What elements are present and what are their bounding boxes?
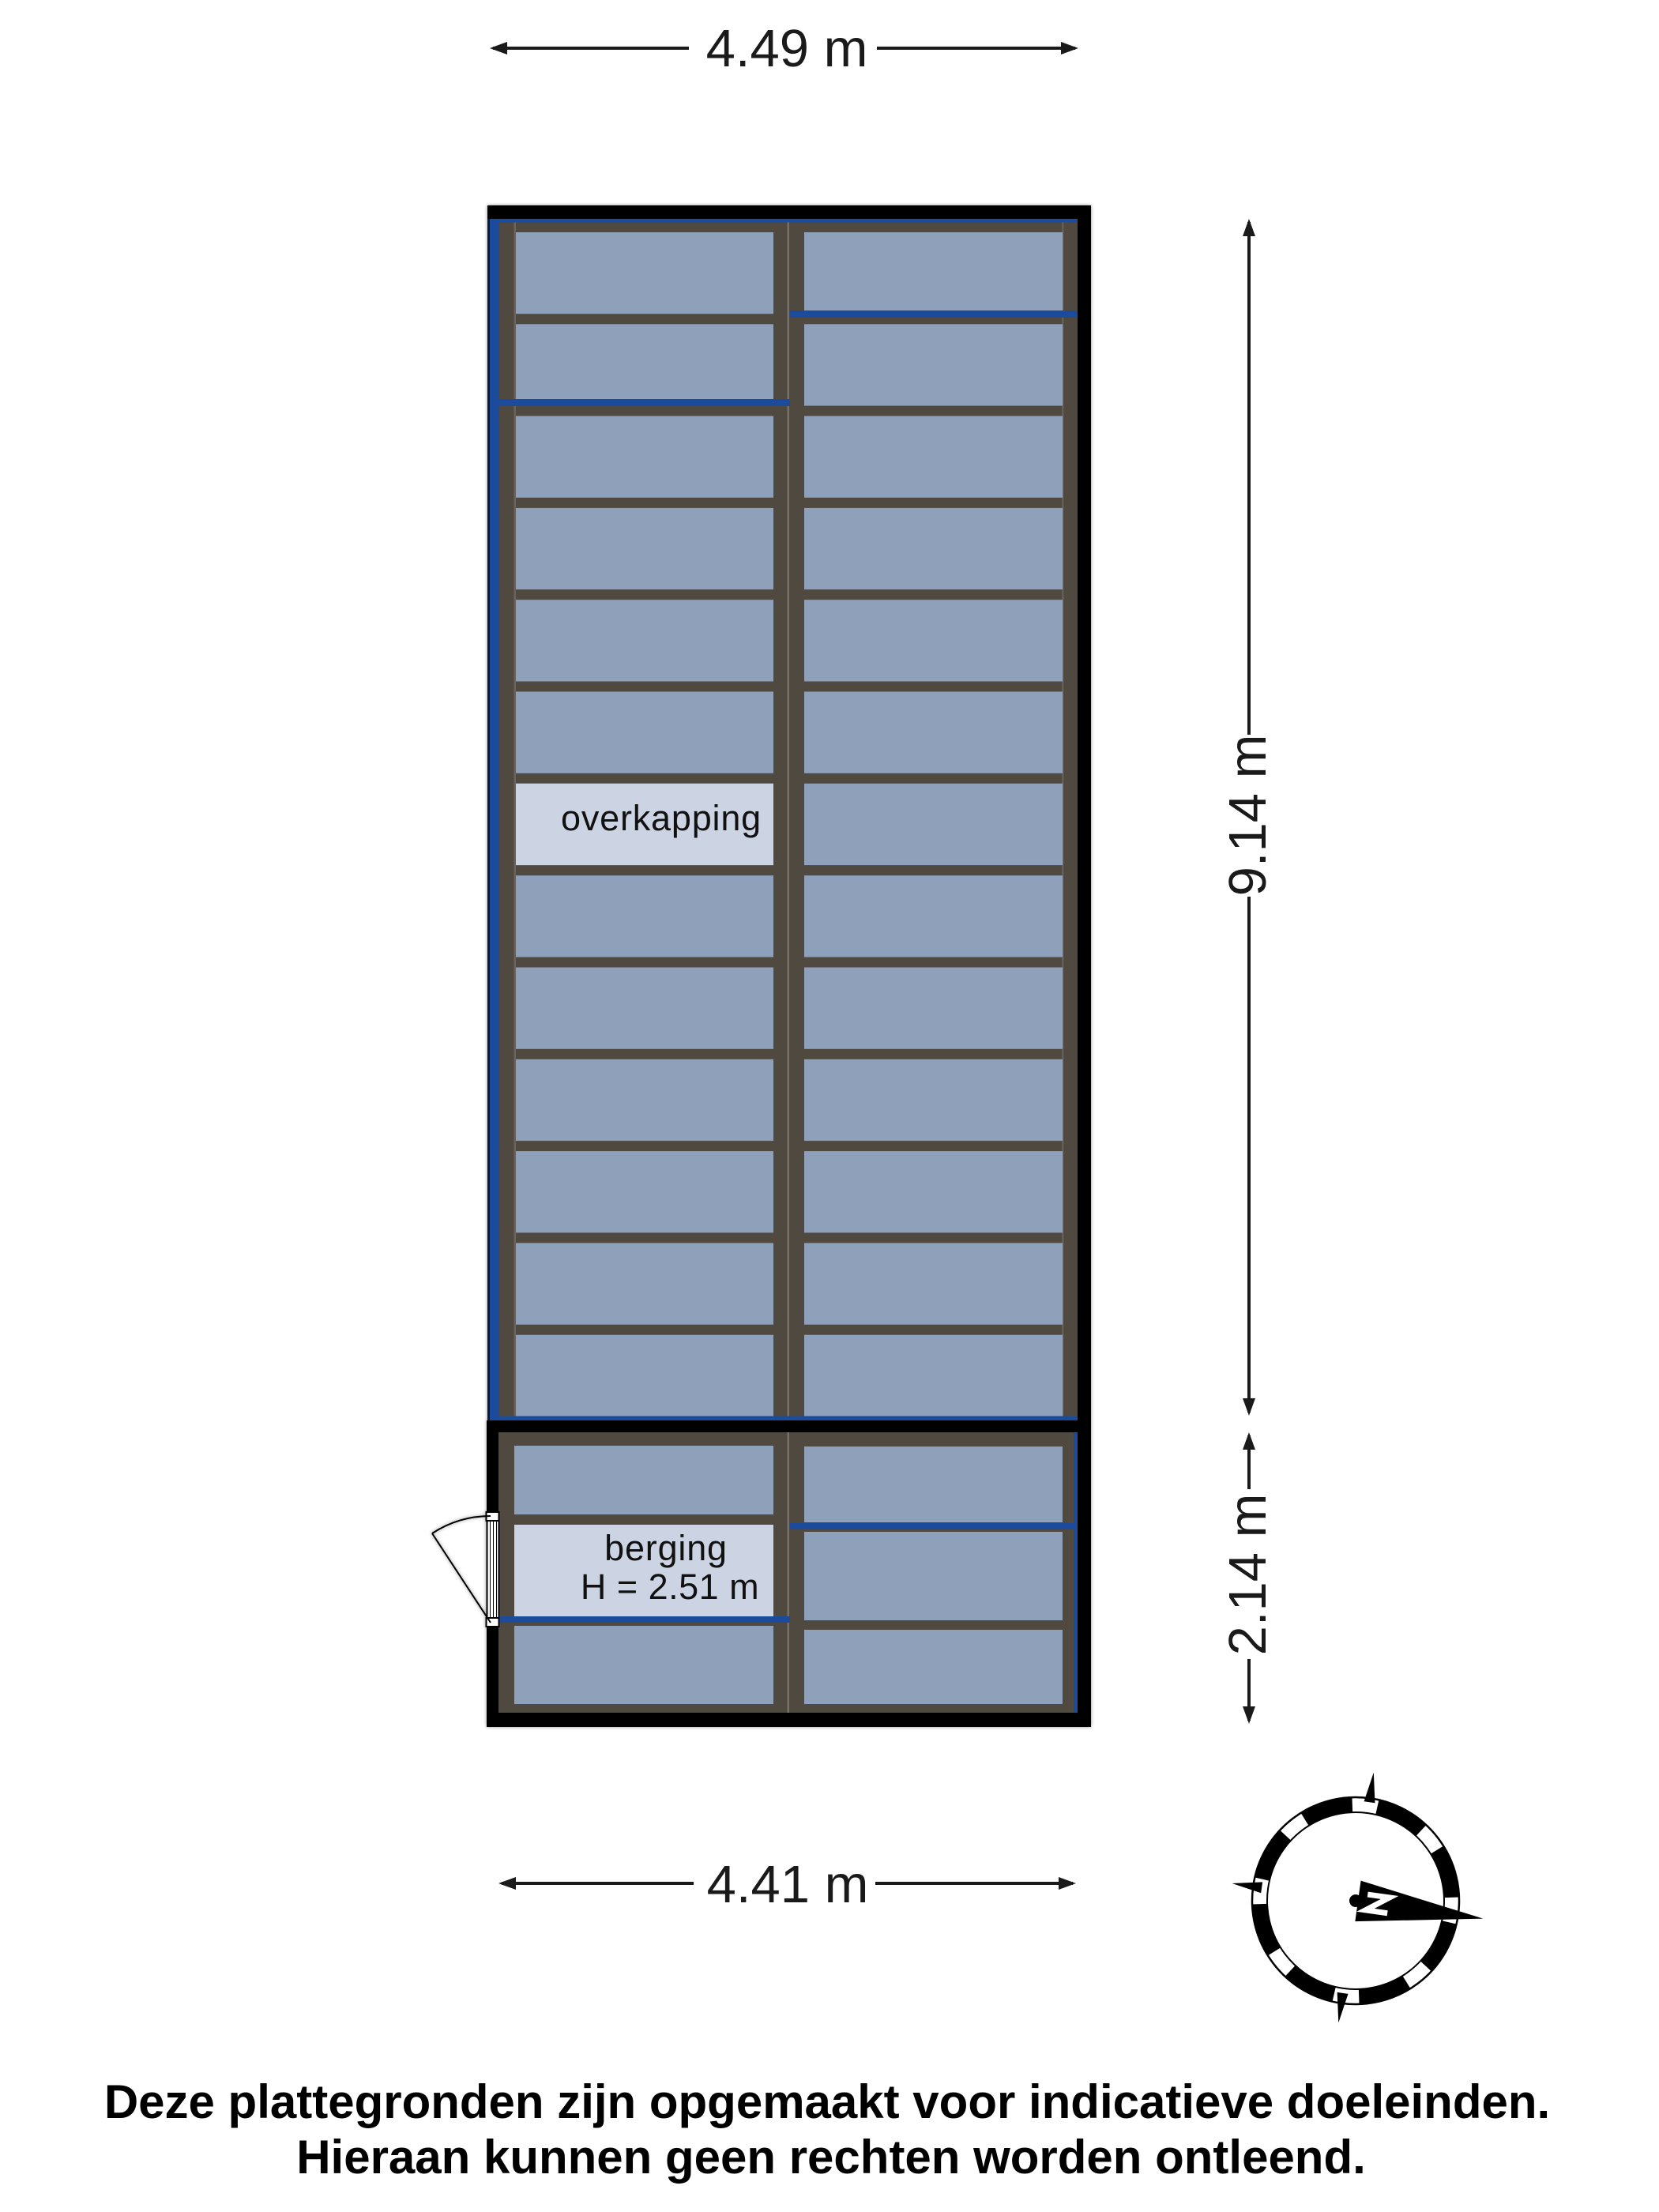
svg-text:H = 2.51 m: H = 2.51 m: [581, 1567, 759, 1607]
svg-text:4.49 m: 4.49 m: [706, 19, 868, 78]
svg-text:Hieraan kunnen geen rechten wo: Hieraan kunnen geen rechten worden ontle…: [296, 2131, 1366, 2184]
svg-text:berging: berging: [604, 1528, 728, 1568]
svg-text:4.41 m: 4.41 m: [707, 1855, 869, 1914]
svg-text:2.14 m: 2.14 m: [1218, 1494, 1277, 1656]
svg-text:9.14 m: 9.14 m: [1218, 735, 1277, 897]
svg-text:Deze plattegronden zijn opgema: Deze plattegronden zijn opgemaakt voor i…: [104, 2075, 1550, 2128]
svg-text:overkapping: overkapping: [561, 798, 762, 838]
